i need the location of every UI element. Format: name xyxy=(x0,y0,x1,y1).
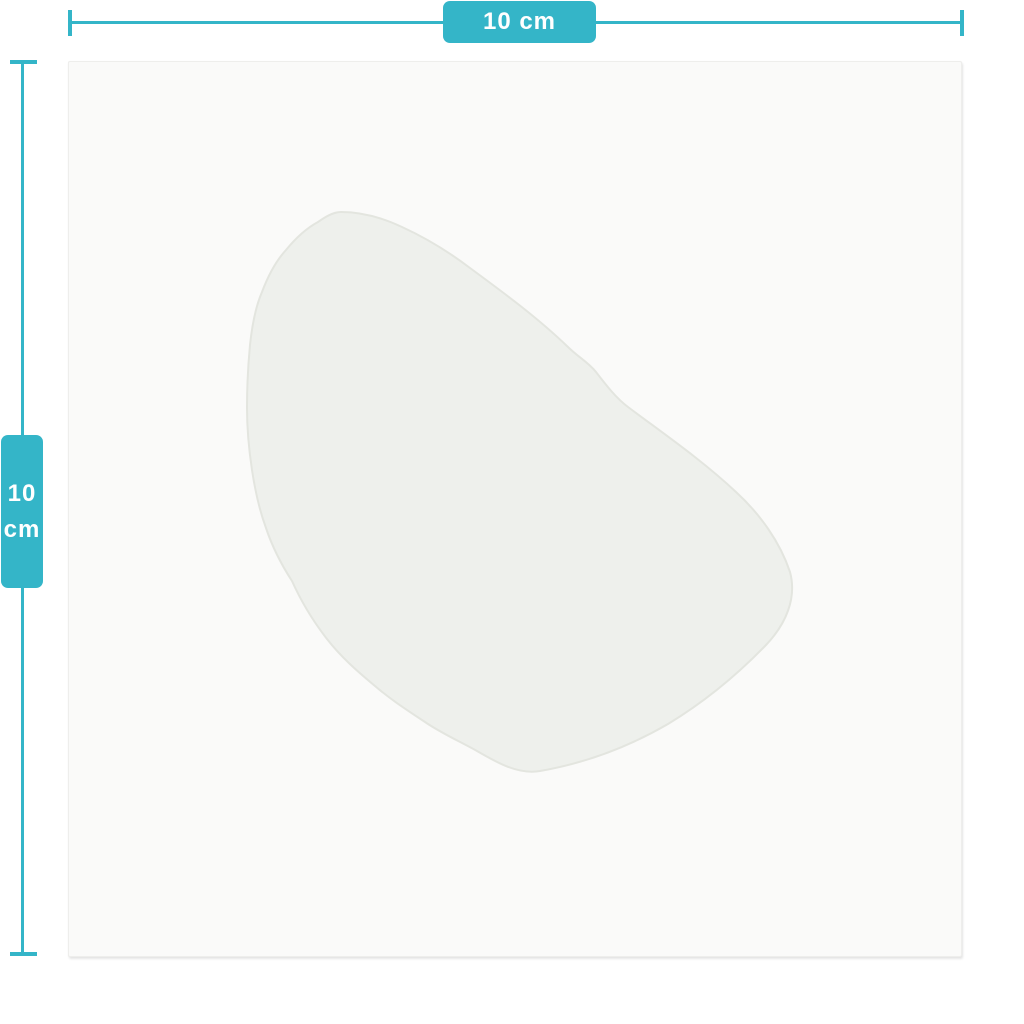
product-sheet xyxy=(68,61,962,957)
width-dimension-label: 10 cm xyxy=(483,8,556,36)
height-dimension-bottom-cap xyxy=(10,952,37,956)
height-dimension-top-cap xyxy=(10,60,37,64)
width-dimension-left-cap xyxy=(68,10,72,36)
width-dimension-badge: 10 cm xyxy=(443,1,596,43)
height-dimension-unit: cm xyxy=(4,512,41,548)
height-dimension-value: 10 xyxy=(8,476,37,512)
product-dimension-diagram: 10 cm 10 cm xyxy=(0,0,1024,1024)
height-dimension-badge: 10 cm xyxy=(1,435,43,588)
width-dimension-right-cap xyxy=(960,10,964,36)
